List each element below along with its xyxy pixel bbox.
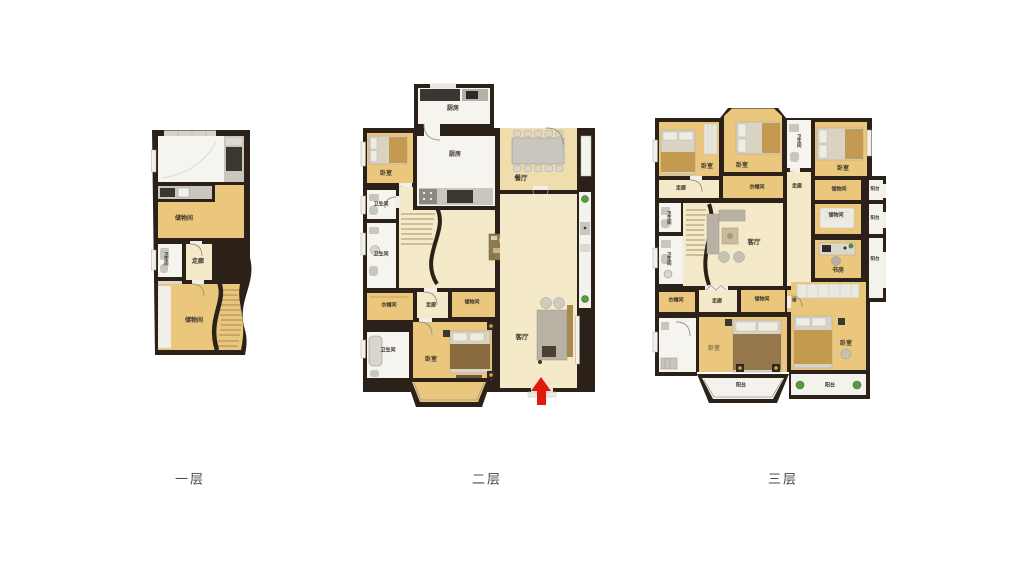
room-label-corridor: 走廊 xyxy=(792,185,802,190)
room-label-cloakroom: 衣帽间 xyxy=(381,304,396,309)
caption-floor1: 一层 xyxy=(175,469,205,488)
room-label-bedroom: 卧室 xyxy=(840,341,852,347)
room-label-storage: 储物间 xyxy=(831,188,846,193)
room-label-storage: 储物间 xyxy=(828,214,843,219)
floorplan-drawing xyxy=(0,0,1010,575)
room-label-stairs: 梯 xyxy=(791,298,796,303)
balcony-r3 xyxy=(869,238,883,298)
room-label-storage: 储物间 xyxy=(754,298,769,303)
plant-icon xyxy=(796,381,804,389)
room-label-kitchen: 厨房 xyxy=(447,106,459,112)
plant-icon xyxy=(582,196,589,203)
bed xyxy=(817,128,863,160)
room-label-balcony: 阳台 xyxy=(825,384,835,389)
plant-icon xyxy=(582,296,589,303)
room-label-kitchen: 厨房 xyxy=(449,152,461,158)
room-label-corridor: 走廊 xyxy=(426,304,436,309)
room-label-bathroom: 卫生间 xyxy=(163,252,168,266)
room-label-balcony: 阳台 xyxy=(871,217,880,222)
room-label-bathroom: 卫生间 xyxy=(373,253,388,258)
bed xyxy=(736,122,780,154)
room-label-storage: 储物间 xyxy=(175,216,193,222)
garage-room xyxy=(158,136,224,182)
room-label-bedroom: 卧室 xyxy=(701,164,713,170)
room-label-bedroom: 卧室 xyxy=(425,357,437,363)
room-label-living: 客厅 xyxy=(748,239,761,246)
bed xyxy=(443,330,490,380)
storage-room-top xyxy=(158,202,244,238)
bed xyxy=(369,136,407,164)
caption-floor2: 二层 xyxy=(472,469,502,488)
hall xyxy=(399,210,495,288)
room-label-balcony: 阳台 xyxy=(736,384,746,389)
room-label-cloakroom: 衣帽间 xyxy=(668,299,683,304)
floor2-plan xyxy=(361,84,595,408)
room-label-dining: 餐厅 xyxy=(515,175,528,182)
room-label-bedroom: 卧室 xyxy=(736,163,748,169)
room-label-corridor: 走廊 xyxy=(712,300,722,305)
room-label-bathroom: 卫生间 xyxy=(796,134,801,148)
room-label-cloakroom: 衣帽间 xyxy=(749,186,764,191)
room-label-bathroom: 卫生间 xyxy=(666,252,671,266)
room-label-storage: 储物间 xyxy=(185,318,203,324)
room-label-living: 客厅 xyxy=(516,334,529,341)
room-label-balcony: 阳台 xyxy=(871,258,880,263)
room-label-bathroom: 卫生间 xyxy=(380,349,395,354)
caption-floor3: 三层 xyxy=(768,469,798,488)
floor3-plan xyxy=(653,108,886,403)
floorplan-image: 储物间 卫生间 走廊 储物间 厨房 厨房 餐厅 卧室 卫生间 卫生间 衣帽间 走… xyxy=(0,0,1010,575)
room-label-bedroom: 卧室 xyxy=(837,166,849,172)
room-label-bedroom: 卧室 xyxy=(380,171,392,177)
room-label-corridor: 走廊 xyxy=(676,187,686,192)
room-label-bedroom: 卧室 xyxy=(708,346,720,352)
room-label-corridor: 走廊 xyxy=(192,259,204,265)
bed xyxy=(661,130,695,174)
room-label-bathroom: 卫生间 xyxy=(666,211,671,225)
room-label-storage: 储物间 xyxy=(464,301,479,306)
room-label-bathroom: 卫生间 xyxy=(373,203,388,208)
room-label-study: 书房 xyxy=(832,268,844,274)
plant-icon xyxy=(853,381,861,389)
room-label-balcony: 阳台 xyxy=(871,188,880,193)
corridor-left-room xyxy=(659,180,719,198)
